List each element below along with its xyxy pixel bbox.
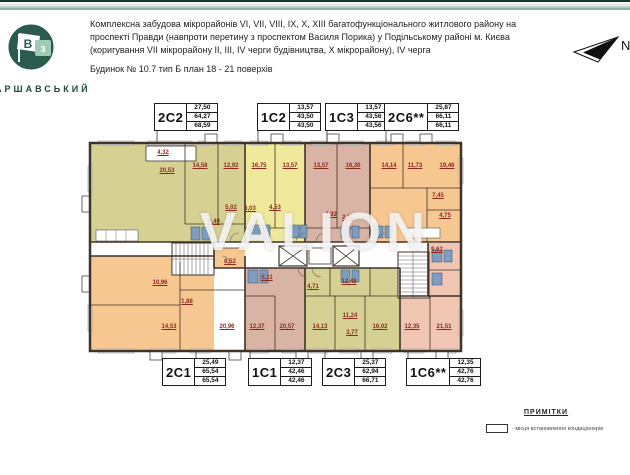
brand-name: ВАРШАВСЬКИЙ (0, 84, 91, 94)
apartment-label-1C1: 1C112,3742,4642,46 (248, 358, 312, 386)
apartment-area-value: 65,54 (195, 377, 225, 385)
room-area-label-1C3: 2,96 (342, 215, 354, 221)
elevator-shafts (279, 246, 359, 266)
room-area-label-2C2: 20,53 (159, 168, 174, 174)
room-area-label-2C2: 14,58 (192, 163, 207, 169)
apartment-type: 1C1 (249, 359, 280, 385)
apartment-area-value: 25,37 (355, 359, 385, 368)
apartment-area-value: 42,46 (281, 377, 311, 385)
project-description-line-2: проспекті Правди (навпроти перетину з пр… (90, 31, 580, 44)
room-area-label-1C2: 13,57 (282, 163, 297, 169)
room-area-label-1C6: 9,62 (431, 247, 443, 253)
apartment-area-value: 42,76 (450, 368, 480, 377)
room-area-label-2C2: 9,49 (208, 219, 220, 225)
room-area-label-1C1: 20,57 (279, 324, 294, 330)
apartment-area-value: 43,50 (290, 113, 320, 122)
apartment-label-2C3: 2C325,3762,9466,71 (322, 358, 386, 386)
apartment-area-value: 13,57 (290, 104, 320, 113)
legend-item: - місця встановлення кондиціонерів (512, 426, 603, 432)
legend-title: ПРИМІТКИ (524, 409, 626, 416)
apartment-area-value: 42,46 (281, 368, 311, 377)
apartment-area-value: 25,49 (195, 359, 225, 368)
apartment-area-value: 25,87 (428, 104, 458, 113)
room-area-label-1C2: 3,03 (244, 206, 256, 212)
apartment-area-value: 66,71 (355, 377, 385, 385)
apartment-label-2C1: 2C125,4965,5465,54 (162, 358, 226, 386)
apartment-area-value: 68,59 (187, 122, 217, 130)
room-area-label-1C3: 13,57 (313, 163, 328, 169)
apartment-area-value: 12,35 (450, 359, 480, 368)
room-area-label-1C3: 16,30 (345, 163, 360, 169)
apartment-type: 2C3 (323, 359, 354, 385)
room-area-label-2C1: 14,53 (161, 324, 176, 330)
apartment-area-value: 66,11 (428, 122, 458, 130)
room-area-label-2C2: 5,02 (225, 205, 237, 211)
apartment-area-value: 66,11 (428, 113, 458, 122)
apartment-type: 1C2 (258, 104, 289, 130)
staircase-left (172, 243, 214, 275)
room-area-label-2C1: 1,88 (181, 299, 193, 305)
north-arrow-icon: N (574, 37, 630, 62)
room-area-label-1C1: 12,37 (249, 324, 264, 330)
room-area-label-2C1: 20,96 (219, 324, 234, 330)
staircase-right (398, 252, 429, 298)
apartment-type: 1C3 (326, 104, 357, 130)
ac-place-icon (486, 424, 508, 433)
logo-square-letter: з (40, 43, 46, 55)
apartment-area-value: 27,50 (187, 104, 217, 113)
room-area-label-1C6: 21,51 (436, 324, 451, 330)
logo-flag-letter: В (24, 37, 33, 51)
project-description-line-1: Комплексна забудова мікрорайонів VI, VII… (90, 18, 580, 31)
room-area-label-2C3: 3,77 (346, 330, 358, 336)
apartment-area-value: 12,37 (281, 359, 311, 368)
room-area-label-2C2: 4,32 (157, 150, 169, 156)
apartment-area-value: 42,76 (450, 377, 480, 385)
apartment-area-value: 62,94 (355, 368, 385, 377)
room-area-label-1C3: 4,92 (325, 212, 337, 218)
project-description-line-3: (коригування VII мікрорайону II, III, IV… (90, 44, 580, 57)
apartment-area-value: 65,54 (195, 368, 225, 377)
room-area-label-2C6: 11,73 (408, 163, 423, 169)
room-area-label-2C1: 10,96 (152, 280, 167, 286)
apartment-1C3-zone (305, 144, 370, 242)
room-area-label-2C6: 4,75 (439, 213, 451, 219)
apartment-label-2C6: 2C6**25,8766,1166,11 (384, 103, 459, 131)
apartment-label-1C6: 1C6**12,3542,7642,76 (406, 358, 481, 386)
room-area-label-2C3: 4,71 (307, 284, 319, 290)
apartment-label-1C3: 1C313,5743,5643,56 (325, 103, 389, 131)
room-area-label-2C2: 12,92 (223, 163, 238, 169)
room-area-label-2C6: 7,45 (432, 193, 444, 199)
apartment-area-value: 64,27 (187, 113, 217, 122)
apartment-type: 2C2 (155, 104, 186, 130)
apartment-2C6-zone (370, 144, 460, 242)
room-area-label-2C3: 16,02 (372, 324, 387, 330)
room-area-label-1C1: 5,11 (261, 275, 272, 281)
apartment-area-value: 43,50 (290, 122, 320, 130)
north-label: N (621, 38, 630, 53)
apartment-label-1C2: 1C213,5743,5043,50 (257, 103, 321, 131)
room-area-label-1C6: 12,35 (404, 324, 419, 330)
room-area-label-1C2: 4,53 (269, 205, 281, 211)
header-block: Комплексна забудова мікрорайонів VI, VII… (90, 18, 580, 74)
apartment-label-2C2: 2C227,5064,2768,59 (154, 103, 218, 131)
room-area-label-2C3: 14,13 (312, 324, 327, 330)
building-info: Будинок № 10.7 тип Б план 18 - 21 поверх… (90, 64, 580, 74)
apartment-type: 2C1 (163, 359, 194, 385)
legend: ПРИМІТКИ - місця встановлення кондиціоне… (486, 409, 626, 433)
room-area-label-2C1: 8,52 (224, 259, 236, 265)
brand-logo: В з (5, 21, 57, 73)
service-shaft (309, 248, 331, 264)
room-area-label-1C2: 16,75 (251, 163, 266, 169)
room-area-label-2C3: 12,48 (341, 279, 356, 285)
room-area-label-2C6: 14,14 (381, 163, 396, 169)
apartment-1C6-room-zone (400, 296, 428, 350)
apartment-type: 2C6** (385, 104, 427, 130)
apartment-type: 1C6** (407, 359, 449, 385)
room-area-label-2C3: 11,24 (343, 313, 358, 319)
apartment-zones (91, 144, 460, 350)
balcony (146, 146, 196, 161)
apartment-2C1-hall-zone (214, 248, 245, 268)
room-area-label-2C6: 19,46 (439, 163, 454, 169)
